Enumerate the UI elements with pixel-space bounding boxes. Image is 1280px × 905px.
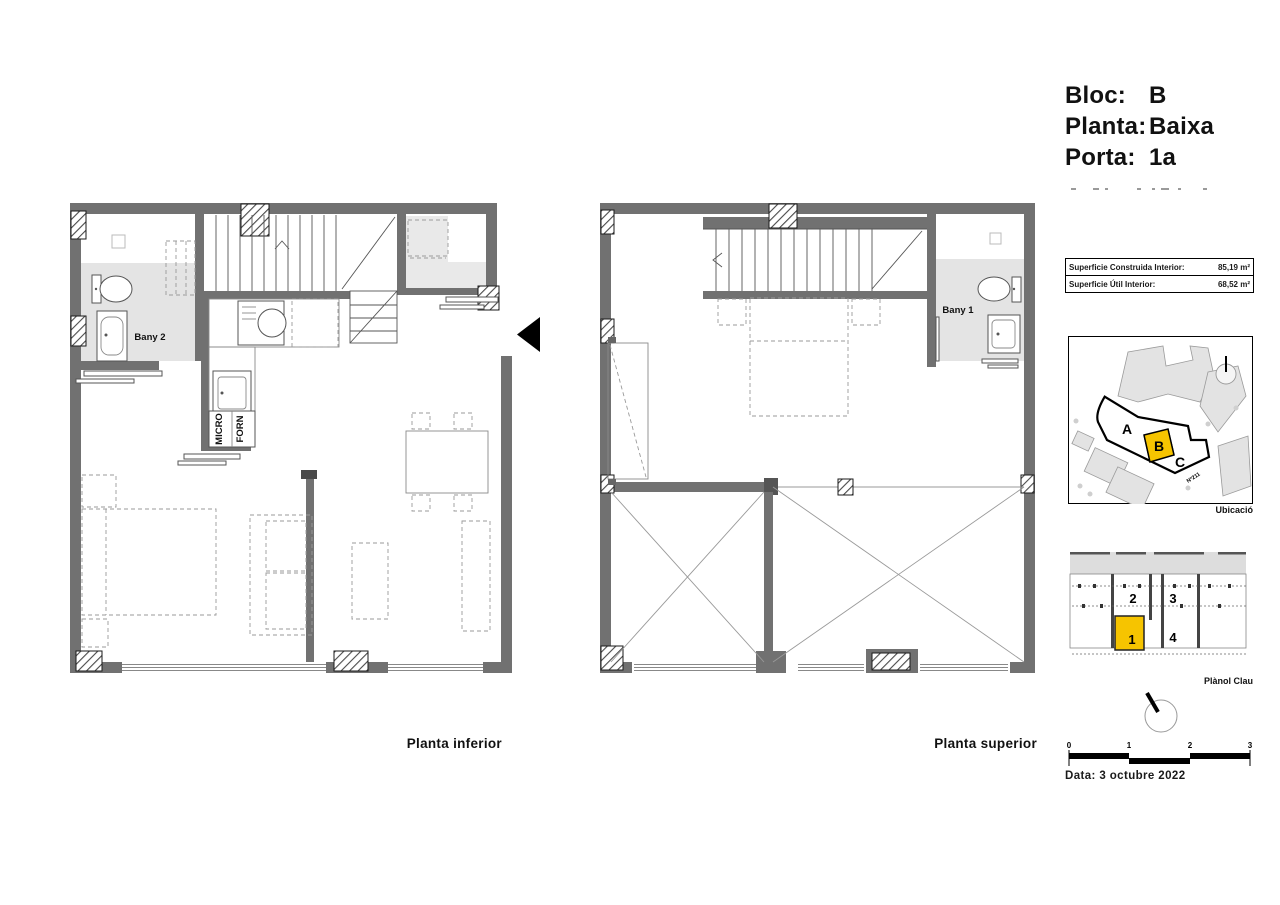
porta-value: 1a xyxy=(1149,142,1275,173)
table-row: Superficie Útil Interior: 68,52 m² xyxy=(1066,276,1253,292)
planta-value: Baixa xyxy=(1149,111,1275,142)
block-c-label: C xyxy=(1175,454,1185,470)
bloc-label: Bloc: xyxy=(1065,80,1149,111)
washbasin-icon xyxy=(97,311,127,361)
area-table: Superficie Construida Interior: 85,19 m²… xyxy=(1065,258,1254,293)
planol-clau-caption: Plànol Clau xyxy=(1160,676,1253,686)
caption-planta-superior: Planta superior xyxy=(887,736,1037,751)
floor-plan-inferior: MICRO FORN Bany 2 xyxy=(70,203,512,673)
title-row-porta: Porta: 1a xyxy=(1065,142,1275,173)
furniture xyxy=(608,298,880,485)
title-row-planta: Planta: Baixa xyxy=(1065,111,1275,142)
drain-icon xyxy=(990,233,1001,244)
porta-label: Porta: xyxy=(1065,142,1149,173)
block-a-label: A xyxy=(1122,421,1132,437)
furniture xyxy=(82,413,490,647)
area-label-construida: Superficie Construida Interior: xyxy=(1069,263,1185,272)
windows xyxy=(634,665,1008,671)
date-label: Data: 3 octubre 2022 xyxy=(1065,770,1186,782)
chair xyxy=(412,413,430,429)
stairs xyxy=(703,229,927,291)
title-row-bloc: Bloc: B xyxy=(1065,80,1275,111)
windows xyxy=(122,665,483,671)
scale-bar: 0 1 2 3 xyxy=(1062,740,1257,766)
key-plan: 2 3 1 4 xyxy=(1068,548,1253,660)
planta-label: Planta: xyxy=(1065,111,1149,142)
north-arrow-icon xyxy=(1128,688,1188,744)
floor-plan-superior: Bany 1 xyxy=(600,203,1035,673)
side-table xyxy=(82,619,108,647)
area-value-construida: 85,19 m² xyxy=(1218,263,1250,272)
nightstand xyxy=(852,299,880,325)
forn-label: FORN xyxy=(235,415,246,442)
building-mass xyxy=(1070,552,1246,574)
bloc-value: B xyxy=(1149,80,1275,111)
coffee-table xyxy=(352,543,388,619)
unit-1-label: 1 xyxy=(1128,632,1135,647)
unit-2-label: 2 xyxy=(1129,591,1136,606)
site-location-map: A B C Nº211 xyxy=(1068,336,1253,504)
table-row: Superficie Construida Interior: 85,19 m² xyxy=(1066,259,1253,276)
kitchen: MICRO FORN xyxy=(209,299,339,447)
unit-4-label: 4 xyxy=(1169,630,1177,645)
scale-tick-3: 3 xyxy=(1248,741,1253,750)
wardrobe xyxy=(608,343,648,479)
caption-planta-inferior: Planta inferior xyxy=(352,736,502,751)
bany1-label: Bany 1 xyxy=(942,305,974,316)
entrance-arrow-icon xyxy=(517,317,540,352)
scale-tick-0: 0 xyxy=(1067,741,1072,750)
bed xyxy=(750,298,848,416)
scale-tick-2: 2 xyxy=(1188,741,1193,750)
nightstand xyxy=(718,299,746,325)
chair xyxy=(412,495,430,511)
bed xyxy=(82,509,216,615)
dining-table xyxy=(406,431,488,493)
block-b-label: B xyxy=(1154,438,1164,454)
scale-tick-1: 1 xyxy=(1127,741,1132,750)
chair xyxy=(454,495,472,511)
sideboard xyxy=(462,521,490,631)
door-leaf xyxy=(936,317,939,361)
ubicacio-caption: Ubicació xyxy=(1160,505,1253,515)
area-label-util: Superficie Útil Interior: xyxy=(1069,280,1155,289)
area-value-util: 68,52 m² xyxy=(1218,280,1250,289)
sink-icon xyxy=(258,309,286,337)
clipped-text-fragment xyxy=(1065,186,1225,190)
unit-3-label: 3 xyxy=(1169,591,1176,606)
title-block: Bloc: B Planta: Baixa Porta: 1a xyxy=(1065,80,1275,173)
pillow xyxy=(82,475,116,507)
drain-icon xyxy=(112,235,125,248)
bany2-label: Bany 2 xyxy=(134,332,165,343)
chair xyxy=(454,413,472,429)
sofa xyxy=(250,515,312,635)
void-cross-lines xyxy=(611,487,1024,662)
unit-band xyxy=(1070,574,1246,648)
micro-label: MICRO xyxy=(214,413,225,445)
column xyxy=(838,479,853,495)
